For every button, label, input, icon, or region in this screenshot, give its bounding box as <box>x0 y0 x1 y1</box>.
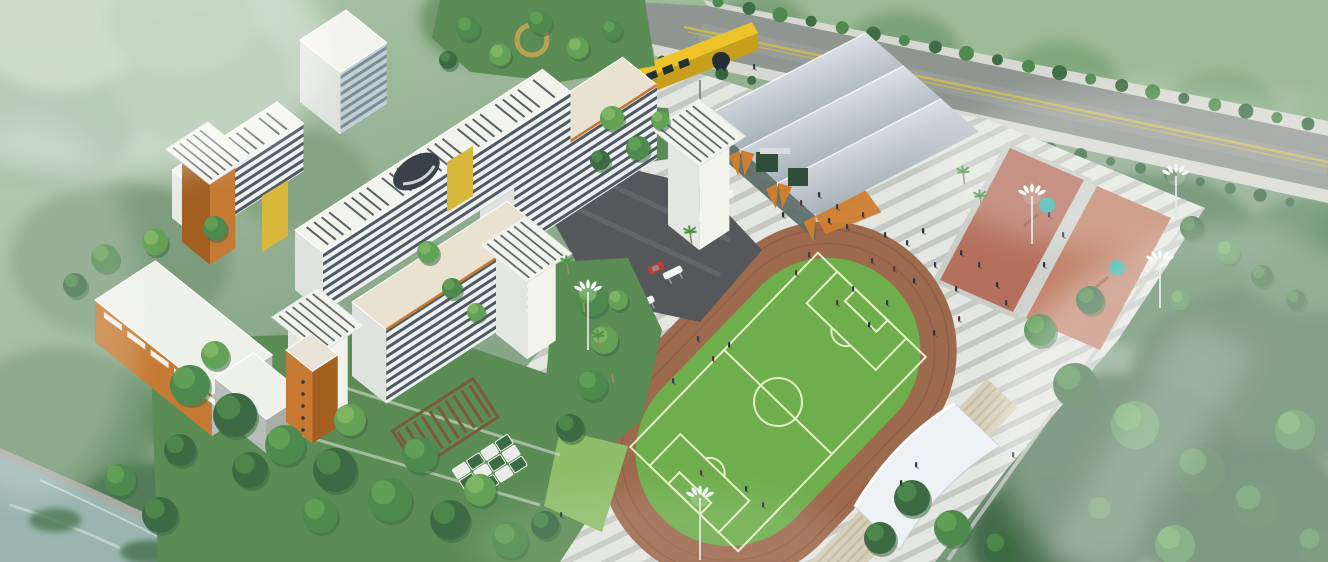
person-figure <box>884 232 886 237</box>
person-figure <box>893 266 895 271</box>
street-tree <box>773 7 788 22</box>
tree-highlight <box>491 45 503 57</box>
tree-highlight <box>579 372 596 389</box>
tree-highlight <box>405 439 425 459</box>
person-figure <box>753 64 755 69</box>
tree-highlight <box>336 406 354 424</box>
person-figure <box>836 300 838 305</box>
person-figure <box>745 486 747 491</box>
tree-highlight <box>937 512 957 532</box>
tree-highlight <box>216 395 240 419</box>
person-figure <box>846 224 848 229</box>
person-figure <box>795 270 797 275</box>
street-tree <box>899 35 910 46</box>
campus-rendering <box>0 0 1328 562</box>
tree-highlight <box>610 291 621 302</box>
tree-highlight <box>602 107 615 120</box>
lamp-glow <box>579 283 597 301</box>
tree-highlight <box>205 217 218 230</box>
tree-highlight <box>558 415 573 430</box>
tree-highlight <box>268 427 290 449</box>
tree-highlight <box>203 342 218 357</box>
tree-highlight <box>145 499 165 519</box>
tree-highlight <box>440 52 450 62</box>
gym-entry-box <box>756 152 778 172</box>
tree-highlight <box>444 279 455 290</box>
person-figure <box>808 252 810 257</box>
stair-window-dot <box>301 416 305 420</box>
person-figure <box>871 258 873 263</box>
gym-entry-box <box>788 168 808 186</box>
street-tree <box>836 21 849 34</box>
person-figure <box>900 480 902 485</box>
tree-highlight <box>468 304 478 314</box>
person-figure <box>934 262 936 267</box>
tree-highlight <box>652 112 662 122</box>
person-figure <box>913 278 915 283</box>
tree-highlight <box>604 21 615 32</box>
street-tree <box>1022 60 1035 73</box>
tree-highlight <box>433 502 455 524</box>
stair-window-dot <box>301 404 305 408</box>
tree-highlight <box>316 450 340 474</box>
tree-highlight <box>986 534 1004 552</box>
stair-window-dot <box>301 428 305 432</box>
person-figure <box>1005 300 1007 305</box>
tree-highlight <box>592 151 603 162</box>
person-figure <box>886 300 888 305</box>
street-tree <box>743 2 756 15</box>
stair-window-dot <box>301 392 305 396</box>
person-figure <box>697 336 699 341</box>
person-figure <box>1043 262 1045 267</box>
tree-highlight <box>530 11 543 24</box>
person-figure <box>978 262 980 267</box>
street-tree <box>992 54 1003 65</box>
person-figure <box>700 470 702 475</box>
tree-highlight <box>166 436 184 454</box>
tree-highlight <box>458 17 471 30</box>
hedge-shrub <box>747 76 756 85</box>
tree-highlight <box>235 454 255 474</box>
tree-highlight <box>371 480 395 504</box>
person-figure <box>782 212 784 217</box>
person-figure <box>960 250 962 255</box>
person-figure <box>712 356 714 361</box>
tree-highlight <box>628 137 641 150</box>
tree-highlight <box>419 242 431 254</box>
bank-shrub <box>29 508 81 532</box>
tree-highlight <box>866 524 884 542</box>
stair-window-dot <box>301 380 305 384</box>
rendering-canvas <box>0 0 1328 562</box>
person-figure <box>836 204 838 209</box>
street-tree <box>959 46 974 61</box>
person-figure <box>906 240 908 245</box>
tree-highlight <box>173 367 195 389</box>
tree-highlight <box>897 482 917 502</box>
orange-stair-tower <box>286 334 338 444</box>
tree-highlight <box>144 230 158 244</box>
street-tree <box>806 16 817 27</box>
tree-highlight <box>466 476 484 494</box>
person-figure <box>672 378 674 383</box>
tree-highlight <box>305 499 325 519</box>
person-figure <box>818 192 820 197</box>
person-figure <box>862 212 864 217</box>
person-figure <box>728 342 730 347</box>
tree-highlight <box>106 466 124 484</box>
tree-highlight <box>569 38 581 50</box>
person-figure <box>800 200 802 205</box>
person-figure <box>996 282 998 287</box>
entry-canopy <box>760 148 790 154</box>
person-figure <box>915 462 917 467</box>
street-tree <box>929 40 942 53</box>
person-figure <box>958 316 960 321</box>
street-tree <box>1052 65 1067 80</box>
street-tree <box>1085 74 1096 85</box>
person-figure <box>868 322 870 327</box>
person-figure <box>955 286 957 291</box>
person-figure <box>852 286 854 291</box>
person-figure <box>933 330 935 335</box>
person-figure <box>922 228 924 233</box>
person-figure <box>828 218 830 223</box>
